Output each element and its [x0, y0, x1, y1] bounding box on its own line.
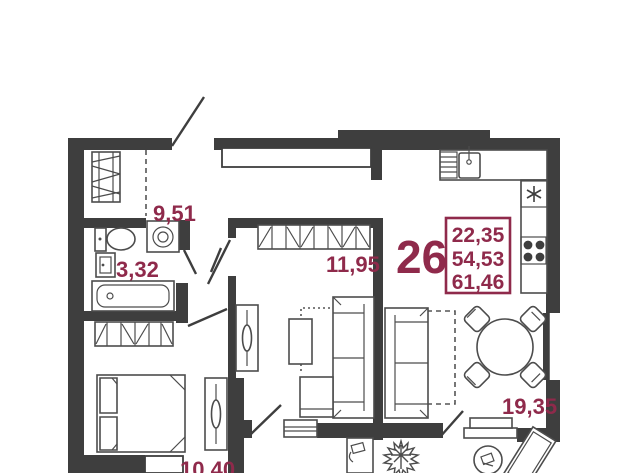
- unit-area-total: 54,53: [452, 248, 505, 271]
- wall-bath-bedroom: [76, 311, 176, 321]
- wall-top-hall: [68, 138, 172, 150]
- living-zone-dash: [427, 311, 455, 404]
- sink-cabinet: [96, 253, 115, 277]
- living-door-swing: [251, 405, 281, 434]
- floor-plan-canvas: 9,51 3,32 11,95 10,40 19,35 26 22,35 54,…: [0, 0, 640, 473]
- wall-kitchen-stub: [371, 150, 382, 180]
- room-door-swing: [208, 240, 230, 284]
- bedroom-furniture: [95, 322, 227, 452]
- bedroom-door-swing: [188, 309, 227, 326]
- room-console: [236, 305, 258, 371]
- wall-right-upper: [546, 138, 560, 313]
- unit-areas-box: 22,35 54,53 61,46: [446, 218, 510, 294]
- tv-cabinet: [284, 420, 317, 437]
- wall-hall-bath: [84, 218, 146, 228]
- living-area-label: 19,35: [502, 394, 557, 419]
- window-top: [222, 148, 371, 167]
- balcony-armchair: [474, 446, 502, 473]
- wall-corridor-right: [228, 276, 236, 378]
- wall-bottom-left: [68, 455, 145, 473]
- floor-plan-drawing: 9,51 3,32 11,95 10,40 19,35 26 22,35 54,…: [0, 0, 640, 473]
- entrance-door-swing: [172, 97, 204, 146]
- hall-furniture: [92, 152, 120, 202]
- kitchen-counter-top: [440, 150, 547, 180]
- desk-doorway: [347, 438, 373, 473]
- wall-door-stub: [244, 420, 252, 438]
- dining-table: [463, 305, 547, 389]
- unit-number: 26: [396, 231, 447, 283]
- bedroom-console: [205, 378, 227, 450]
- wall-top-pier: [338, 130, 490, 139]
- toilet: [95, 228, 135, 251]
- bath-door-swing: [184, 250, 196, 274]
- plant-icon: [384, 441, 418, 473]
- wall-bath-right: [176, 283, 188, 323]
- balcony-door-swing: [440, 411, 463, 437]
- living-sofa: [385, 308, 428, 418]
- unit-area-living: 22,35: [452, 224, 505, 247]
- double-bed: [97, 375, 185, 452]
- window-bedroom: [145, 456, 183, 473]
- bathroom-area-label: 3,32: [116, 257, 159, 282]
- unit-area-overall: 61,46: [452, 271, 505, 294]
- wall-bottom-middle: [317, 423, 443, 438]
- tv-stand: [289, 319, 312, 364]
- hall-area-label: 9,51: [153, 201, 196, 226]
- balcony-door-step: [464, 418, 517, 438]
- bedroom-area-label: 10,40: [180, 457, 235, 473]
- bathtub: [92, 281, 174, 311]
- wall-left: [68, 138, 84, 473]
- room-area-label: 11,95: [326, 252, 380, 277]
